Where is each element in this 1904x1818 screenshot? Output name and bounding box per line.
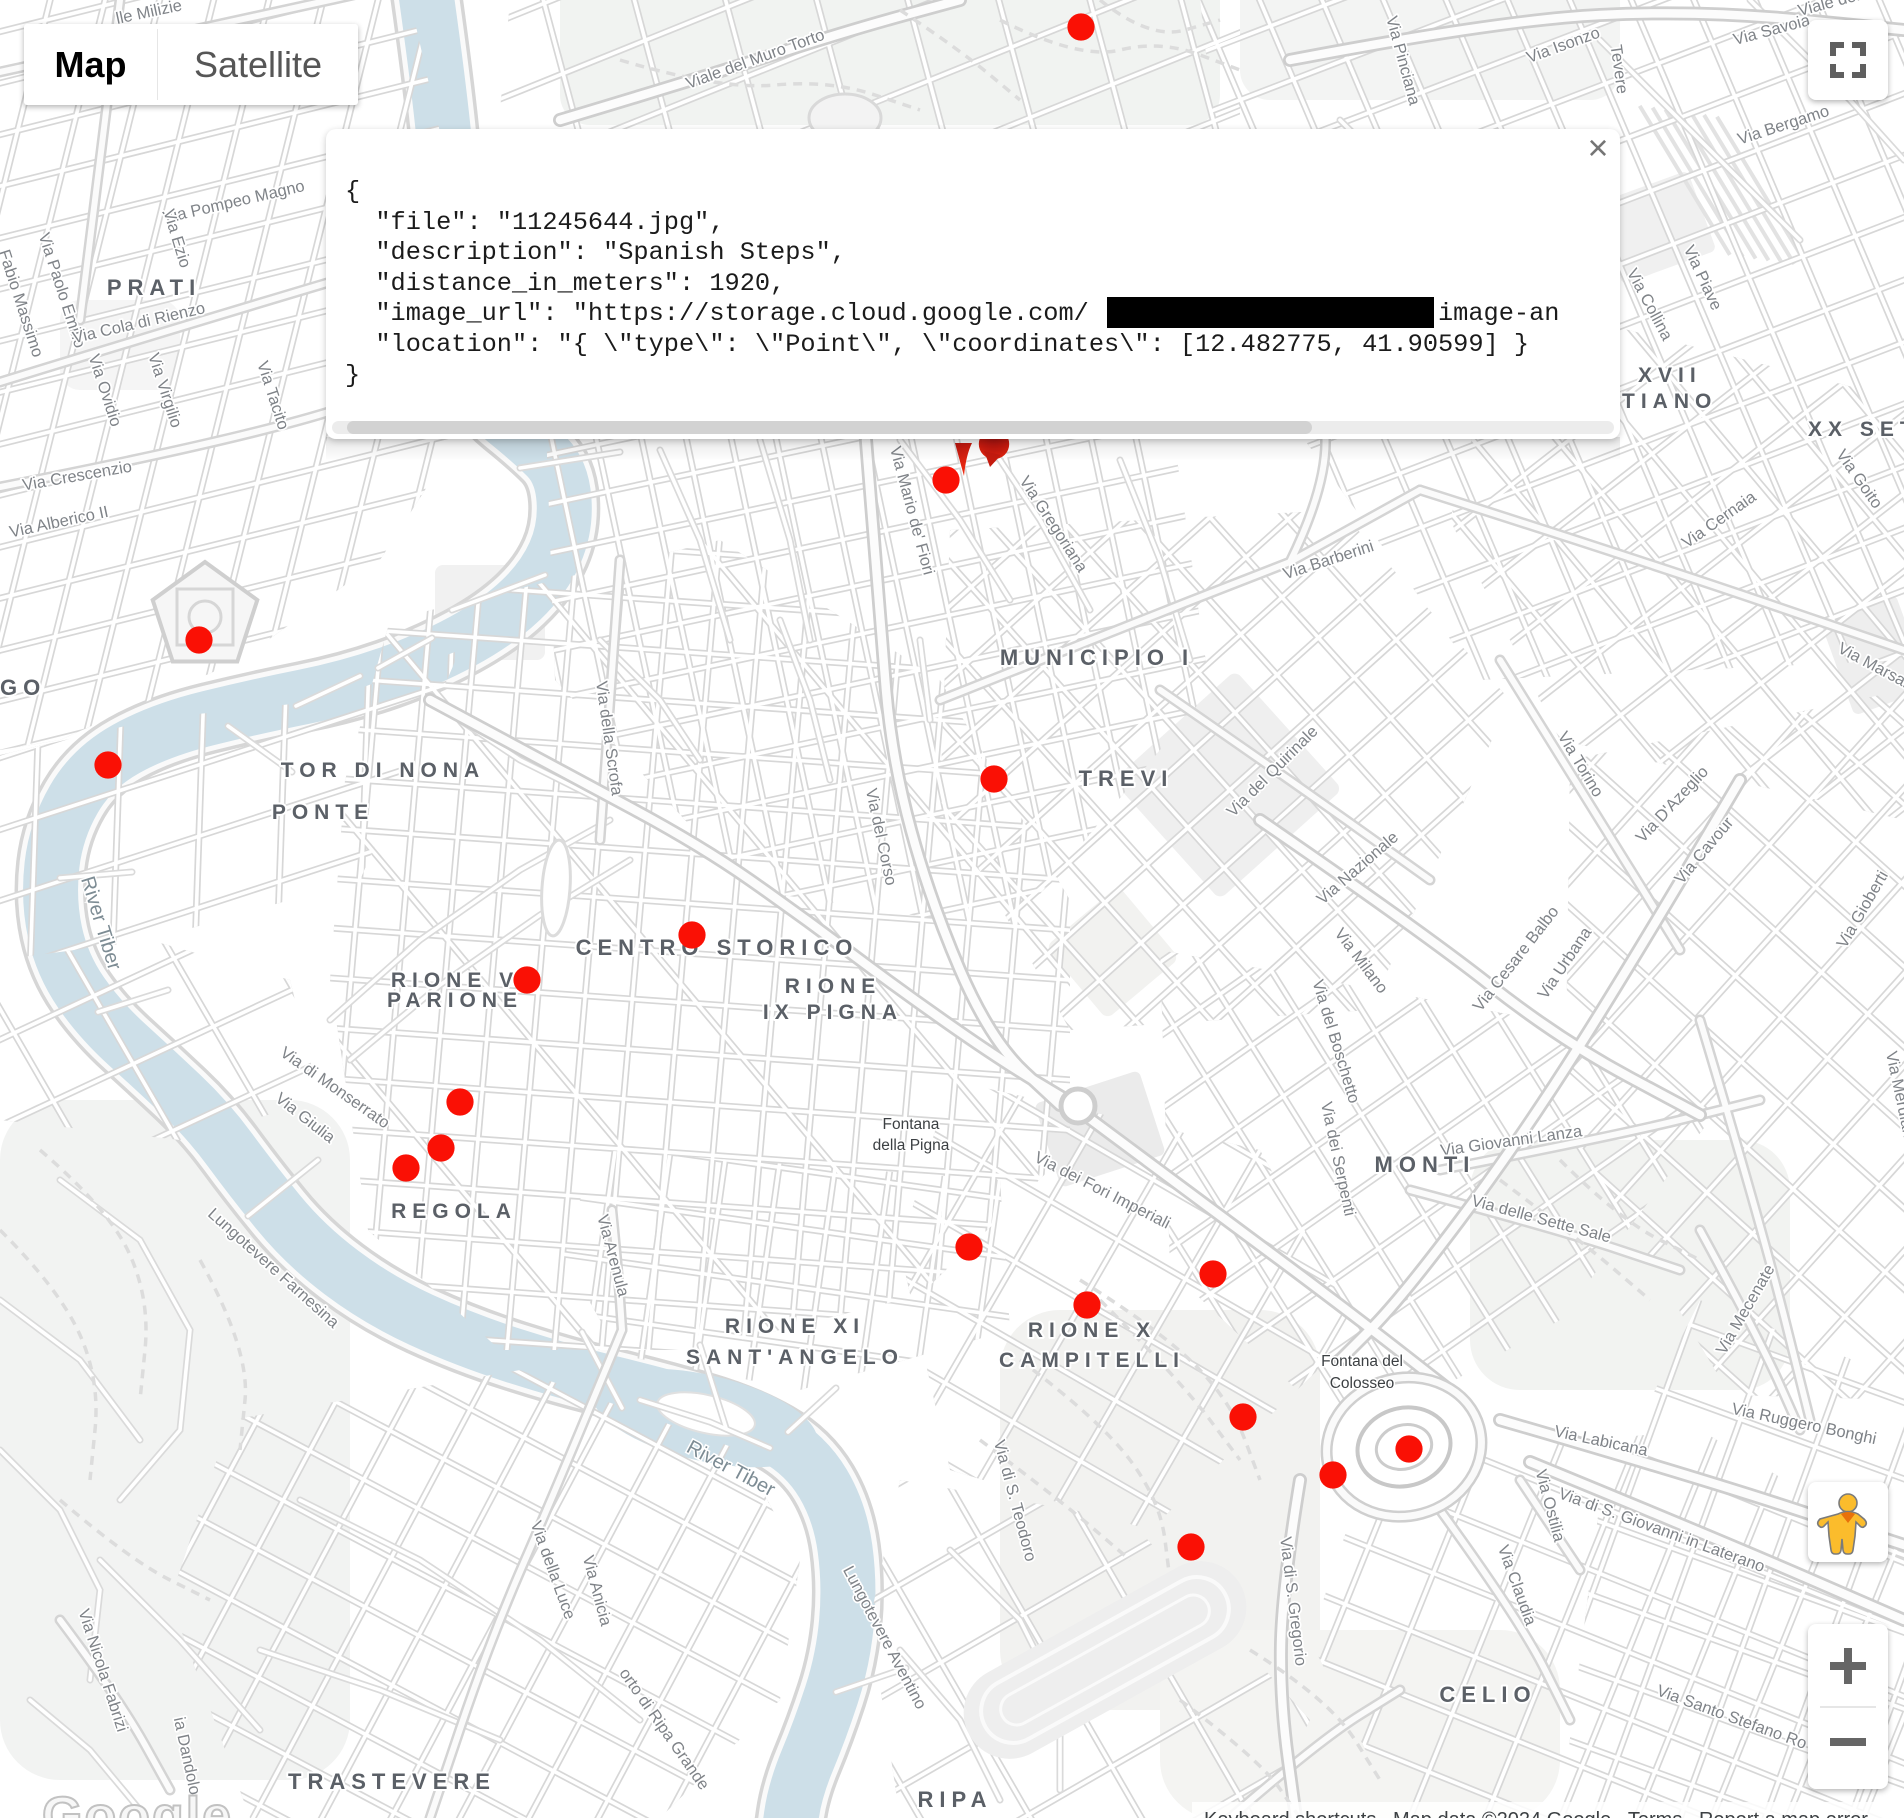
svg-text:IX PIGNA: IX PIGNA [763, 1001, 903, 1024]
svg-text:SANT'ANGELO: SANT'ANGELO [686, 1346, 904, 1369]
svg-text:PARIONE: PARIONE [387, 989, 523, 1012]
svg-text:RIPA: RIPA [918, 1787, 993, 1812]
svg-text:CAMPITELLI: CAMPITELLI [999, 1349, 1185, 1372]
svg-text:REGOLA: REGOLA [391, 1200, 517, 1223]
svg-text:Fontana: Fontana [883, 1116, 940, 1133]
svg-text:PRATI: PRATI [107, 275, 201, 300]
svg-text:CELIO: CELIO [1439, 1682, 1536, 1707]
svg-text:TOR DI NONA: TOR DI NONA [281, 759, 485, 782]
svg-text:TRASTEVERE: TRASTEVERE [288, 1769, 496, 1794]
svg-text:TREVI: TREVI [1079, 766, 1174, 791]
svg-text:Fontana del: Fontana del [1321, 1353, 1403, 1370]
svg-text:Google: Google [42, 1787, 233, 1818]
svg-text:della Pigna: della Pigna [873, 1137, 950, 1154]
svg-text:XX SETTEMBRE: XX SETTEMBRE [1808, 418, 1904, 441]
svg-text:RIONE: RIONE [785, 975, 882, 998]
svg-text:XVII: XVII [1638, 364, 1702, 387]
svg-text:PONTE: PONTE [272, 801, 374, 824]
svg-text:RIONE X: RIONE X [1028, 1319, 1156, 1342]
svg-text:GO: GO [0, 675, 46, 700]
svg-text:TIANO: TIANO [1622, 390, 1717, 413]
svg-text:CENTRO STORICO: CENTRO STORICO [576, 935, 859, 960]
svg-text:Colosseo: Colosseo [1330, 1375, 1395, 1392]
svg-text:MUNICIPIO I: MUNICIPIO I [1000, 645, 1194, 670]
svg-text:MONTI: MONTI [1375, 1152, 1476, 1177]
svg-text:RIONE XI: RIONE XI [725, 1315, 865, 1338]
